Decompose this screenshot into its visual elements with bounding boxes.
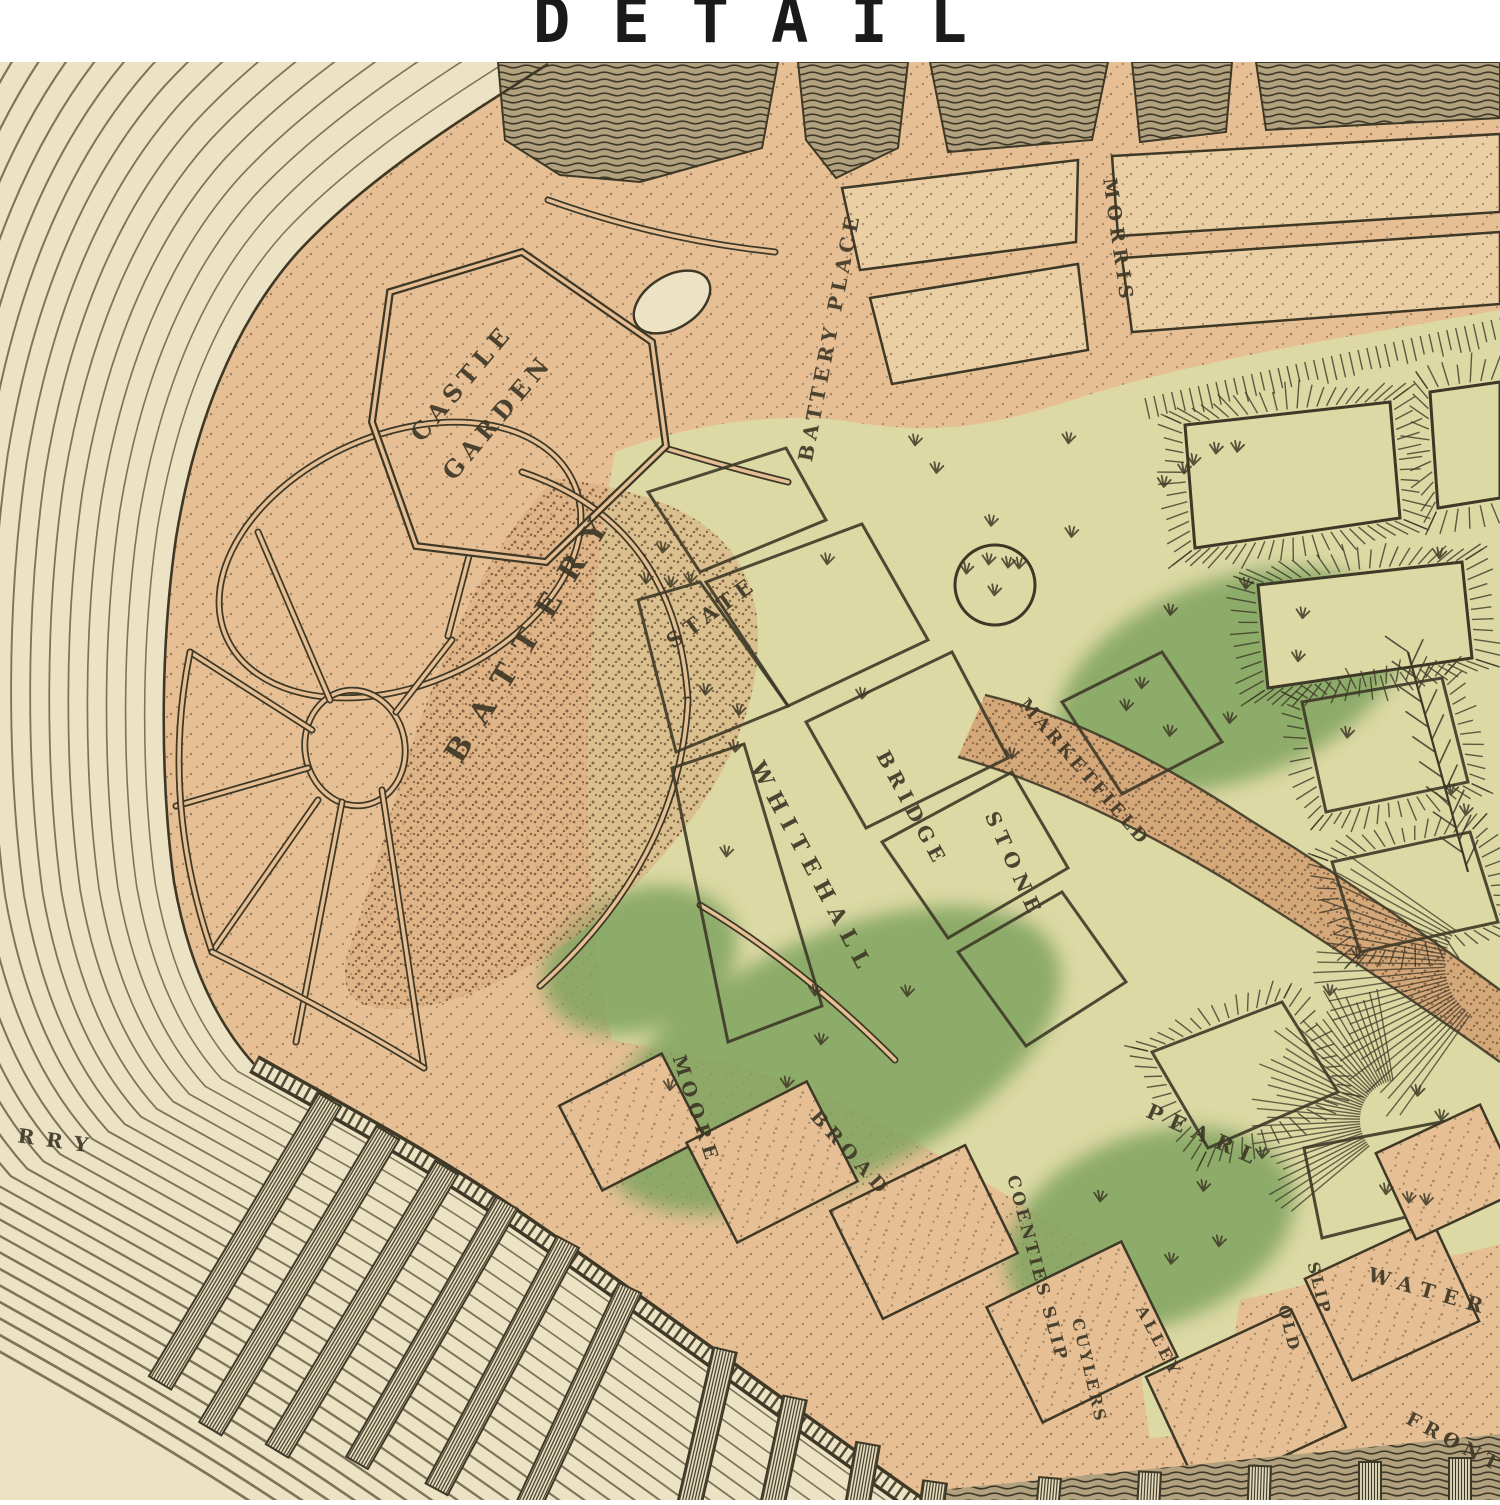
detail-header-band: DETAIL — [0, 0, 1500, 62]
map-container: CASTLEGARDENBATTERYBATTERY PLACEMORRISST… — [0, 62, 1500, 1500]
page: { "header": { "title": "DETAIL" }, "colo… — [0, 0, 1500, 1500]
map-image: CASTLEGARDENBATTERYBATTERY PLACEMORRISST… — [0, 62, 1500, 1500]
page-title: DETAIL — [21, 0, 1500, 57]
